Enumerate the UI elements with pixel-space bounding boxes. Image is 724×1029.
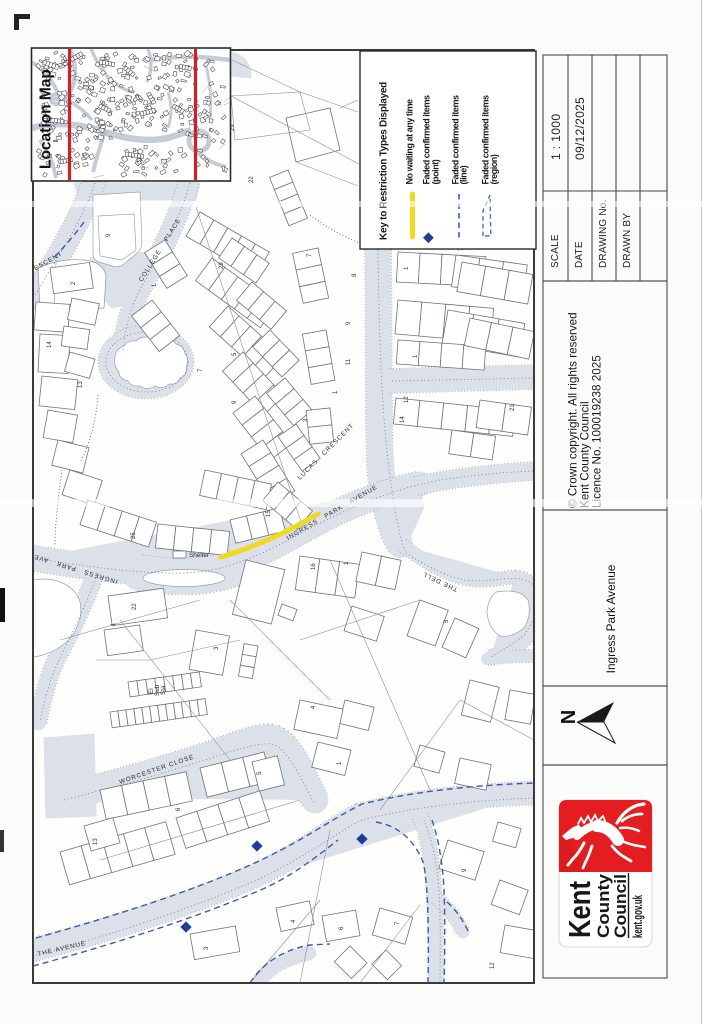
svg-text:12: 12 (490, 962, 496, 969)
svg-text:Licence No. 100019238 2025: Licence No. 100019238 2025 (591, 355, 604, 508)
svg-text:County: County (595, 873, 613, 938)
svg-text:Kent: Kent (562, 881, 597, 938)
svg-text:Sta: Sta (160, 685, 167, 695)
svg-text:DRAWN BY: DRAWN BY (622, 213, 633, 268)
svg-text:Location Map: Location Map (38, 69, 55, 169)
svg-text:21: 21 (510, 404, 516, 411)
svg-text:13: 13 (78, 381, 84, 388)
svg-text:15: 15 (266, 510, 272, 517)
svg-text:(point): (point) (431, 159, 441, 184)
svg-text:25: 25 (131, 532, 137, 539)
svg-text:No waiting at any time: No waiting at any time (405, 99, 415, 185)
svg-text:DRAWING No.: DRAWING No. (598, 200, 609, 269)
svg-text:22: 22 (132, 603, 138, 610)
svg-text:SCALE: SCALE (550, 234, 561, 268)
svg-text:16: 16 (311, 563, 317, 570)
svg-text:13: 13 (93, 838, 99, 845)
svg-text:(line): (line) (459, 165, 469, 184)
svg-text:29: 29 (219, 262, 225, 269)
svg-text:09/12/2025: 09/12/2025 (573, 97, 587, 160)
svg-text:1 : 1000: 1 : 1000 (549, 114, 563, 160)
svg-text:11: 11 (346, 358, 352, 365)
svg-text:Key to Restriction Types Displ: Key to Restriction Types Displayed (379, 82, 390, 240)
svg-text:Council: Council (612, 874, 630, 938)
svg-text:N: N (558, 710, 580, 724)
svg-text:12: 12 (404, 396, 410, 403)
svg-text:(region): (region) (489, 154, 499, 184)
svg-text:22: 22 (249, 176, 255, 183)
svg-text:Ingress Park Avenue: Ingress Park Avenue (604, 564, 618, 673)
svg-text:14: 14 (47, 341, 53, 348)
svg-text:14: 14 (400, 416, 406, 423)
svg-text:Shelter: Shelter (189, 552, 209, 559)
svg-text:DATE: DATE (574, 241, 585, 268)
svg-text:kent.gov.uk: kent.gov.uk (631, 895, 645, 938)
